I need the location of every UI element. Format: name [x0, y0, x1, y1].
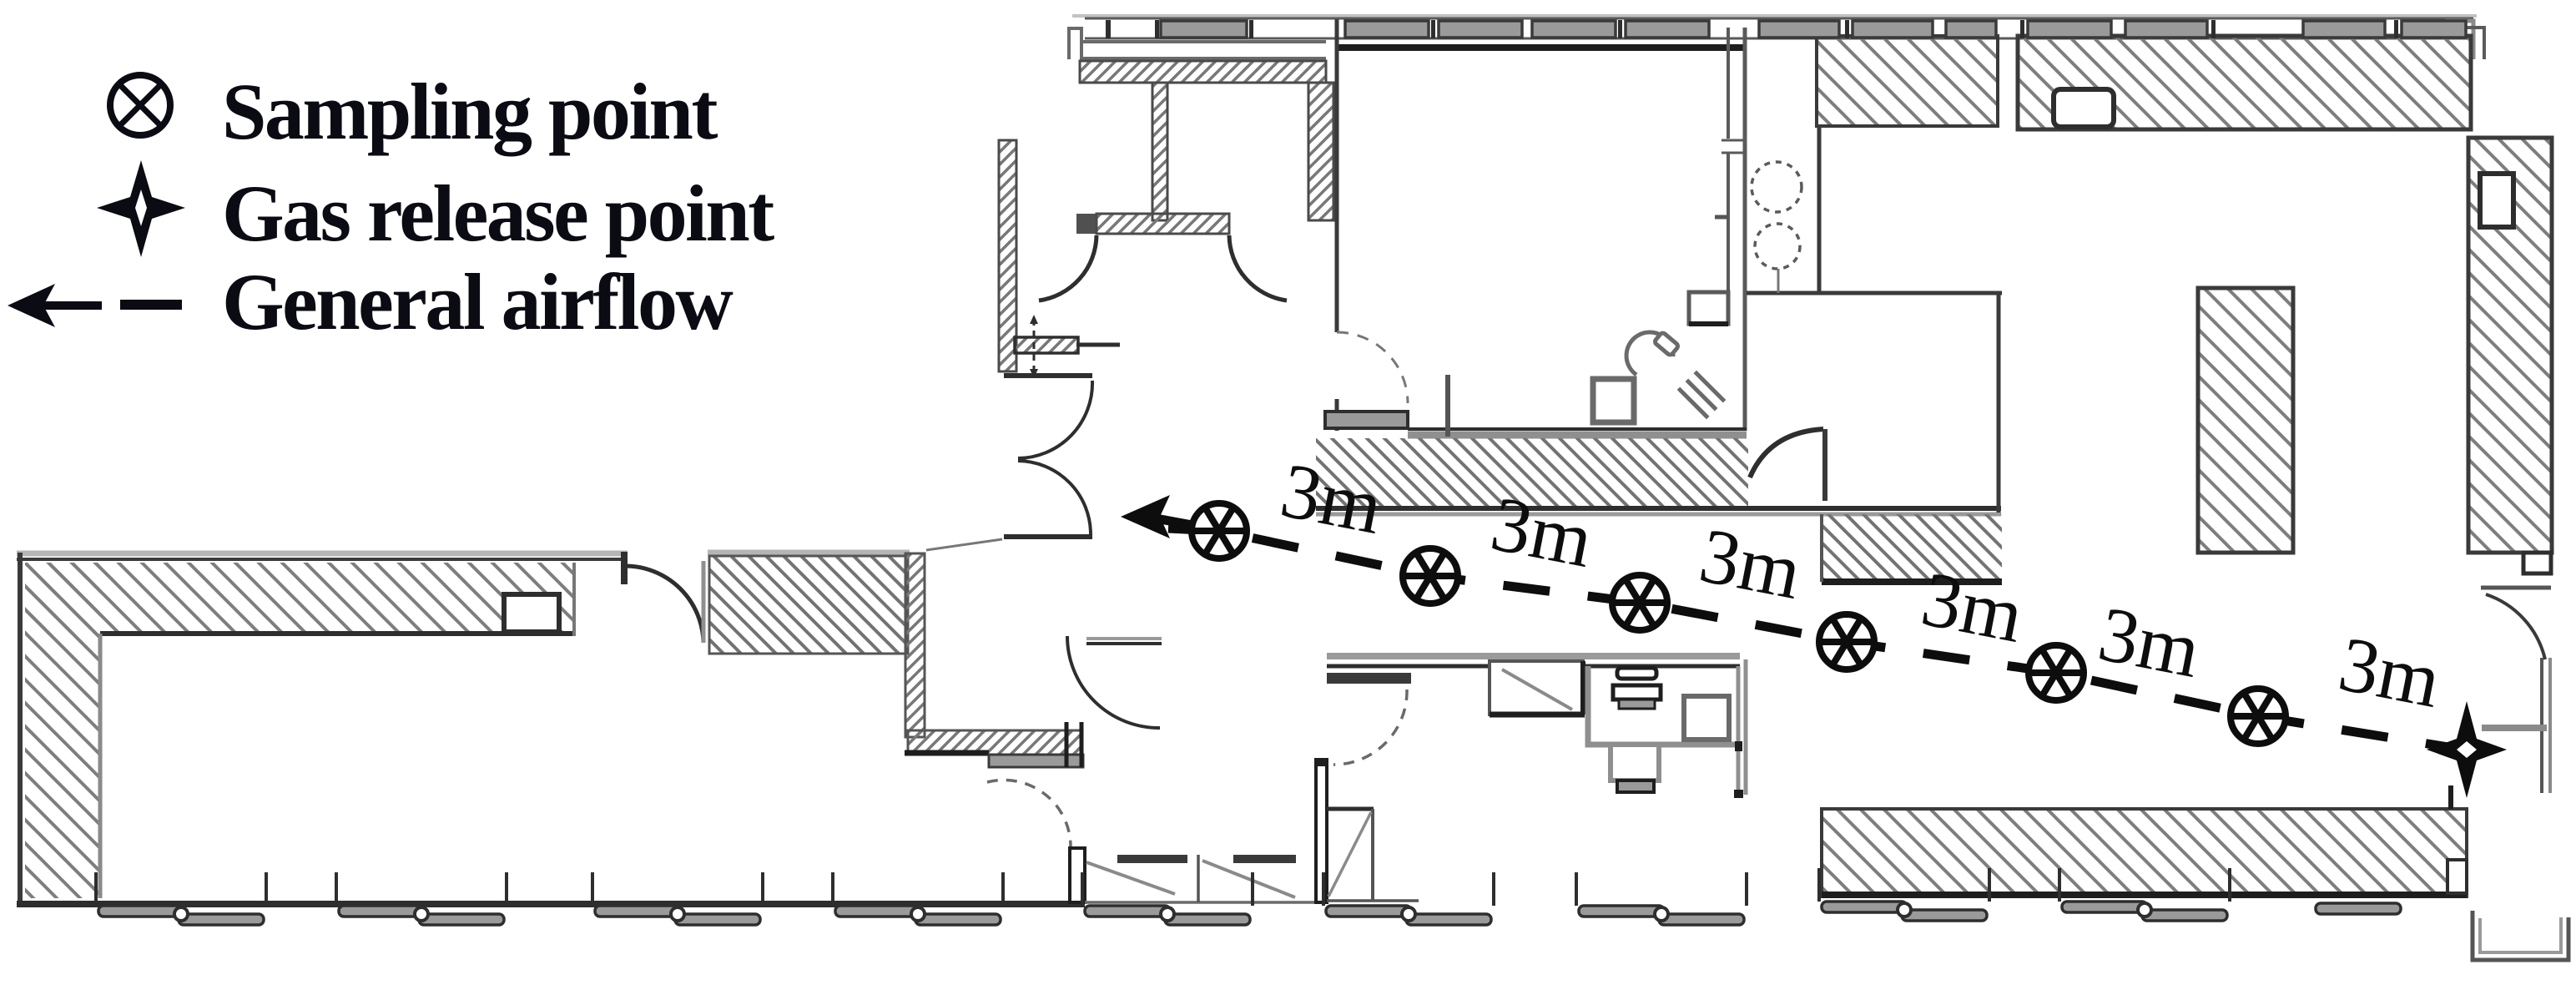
svg-text:General airflow: General airflow: [222, 257, 733, 346]
svg-text:Sampling point: Sampling point: [222, 67, 718, 156]
svg-text:Gas release point: Gas release point: [222, 169, 774, 258]
